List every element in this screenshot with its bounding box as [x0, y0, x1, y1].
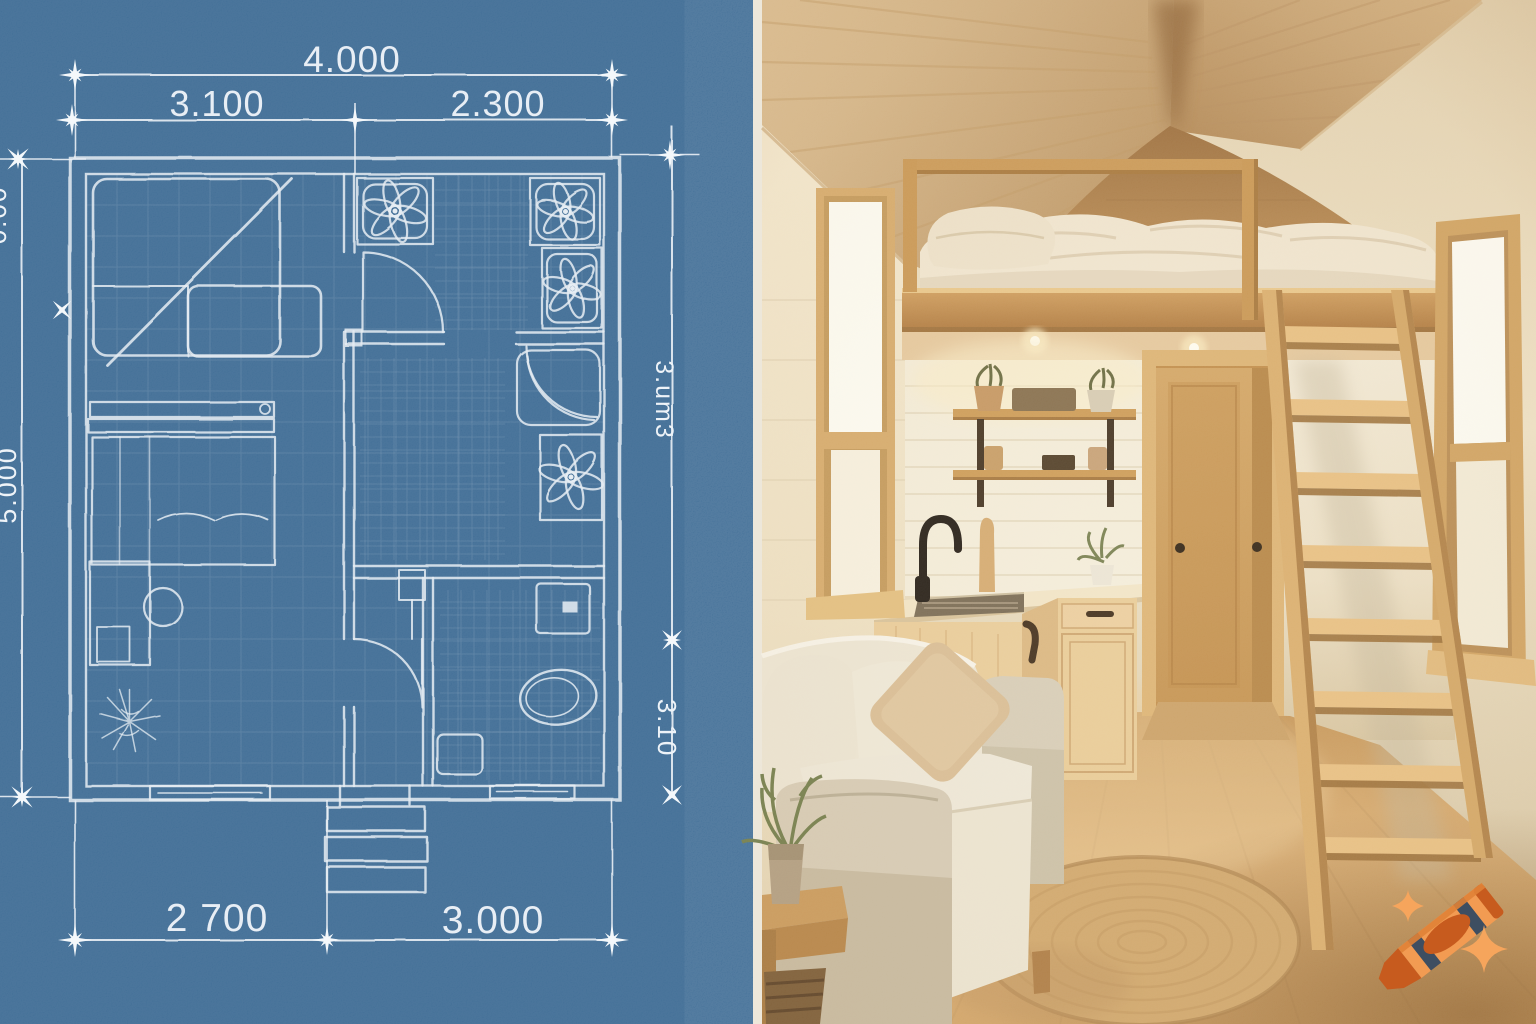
svg-text:2 700: 2 700: [166, 897, 269, 940]
svg-text:3.100: 3.100: [169, 83, 264, 124]
svg-text:4.000: 4.000: [303, 39, 401, 80]
svg-text:0.00: 0.00: [0, 186, 12, 245]
svg-text:3.um3: 3.um3: [650, 360, 678, 439]
svg-text:3.000: 3.000: [442, 899, 545, 942]
svg-text:5.000: 5.000: [0, 446, 22, 524]
svg-text:3.10: 3.10: [652, 699, 682, 758]
svg-text:2.300: 2.300: [450, 83, 545, 124]
